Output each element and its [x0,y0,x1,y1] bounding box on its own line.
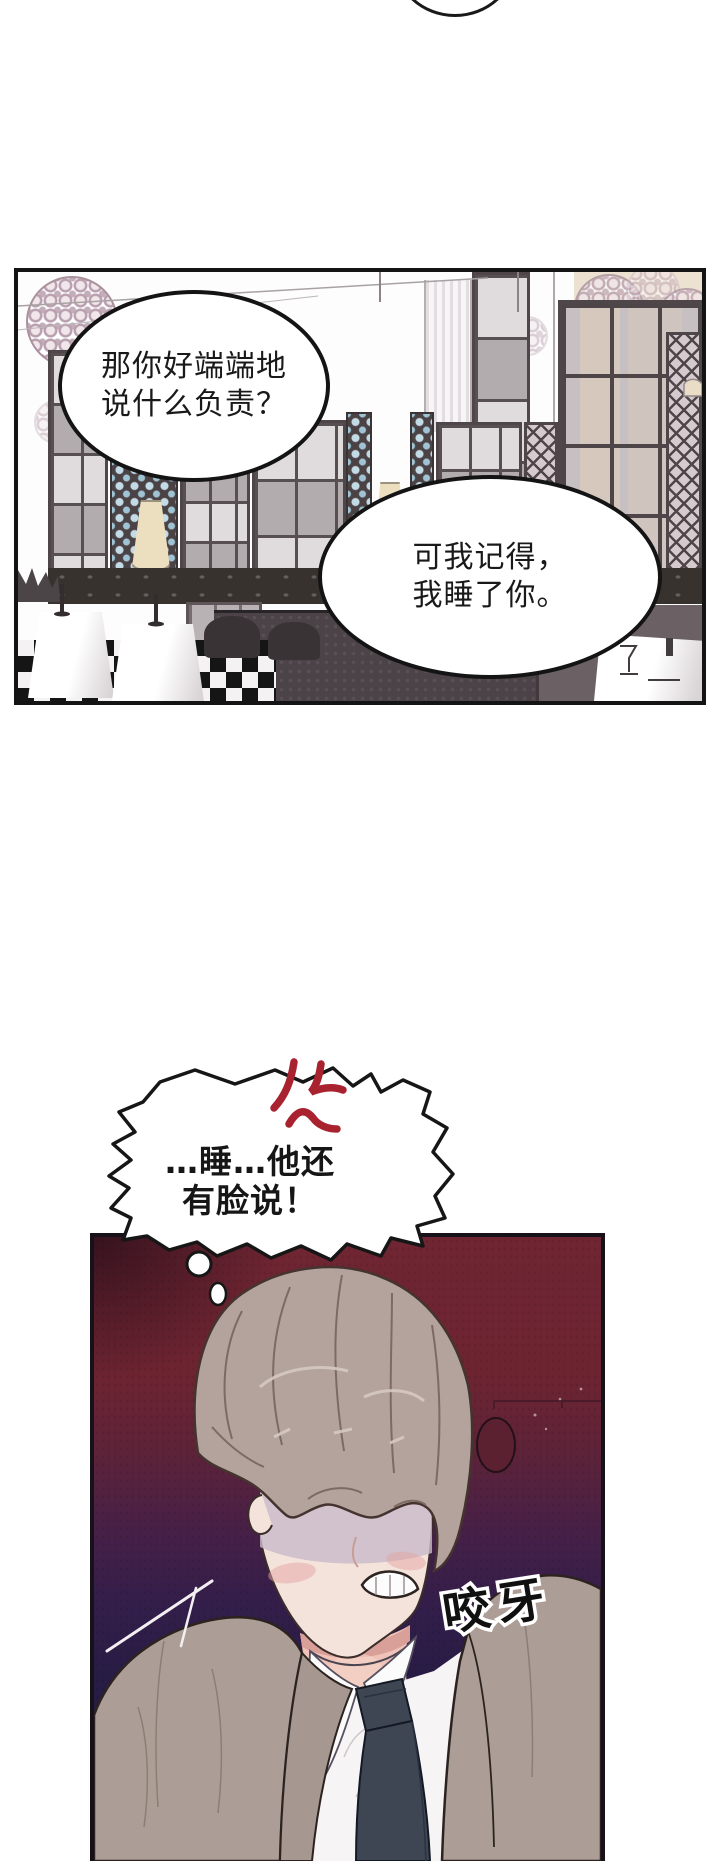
thought-line: 有脸说！ [115,1181,385,1220]
candlesticks [54,584,164,627]
thought-line: …睡…他还 [115,1142,385,1181]
wine-glass-and-bottle [620,638,680,680]
comic-page: 那你好端端地 说什么负责？ 可我记得， 我睡了你。 [0,0,720,1861]
thought-trail-bubble-2 [210,1283,226,1305]
hair-shadow-gap [477,1418,515,1472]
plant-tuft [18,568,60,602]
speech-line: 我睡了你。 [413,577,568,615]
speech-bubble-1-text: 那你好端端地 说什么负责？ [101,348,287,424]
wall-seam-line [494,1401,601,1409]
thought-bubble: …睡…他还 有脸说！ [85,1040,480,1340]
restaurant-panel: 那你好端端地 说什么负责？ 可我记得， 我睡了你。 [14,268,706,705]
speech-bubble-2: 可我记得， 我睡了你。 [318,475,662,679]
wall-sconce [684,379,702,396]
speech-bubble-1: 那你好端端地 说什么负责？ [58,290,330,482]
thought-text: …睡…他还 有脸说！ [115,1142,385,1220]
speech-line: 那你好端端地 [101,348,287,386]
thought-trail-bubble-1 [187,1252,211,1276]
speech-line: 可我记得， [413,539,568,577]
speech-bubble-2-text: 可我记得， 我睡了你。 [413,539,568,615]
previous-panel-bubble-arc [394,0,516,17]
sparkle-specks [534,1388,583,1431]
speech-line: 说什么负责？ [101,386,287,424]
